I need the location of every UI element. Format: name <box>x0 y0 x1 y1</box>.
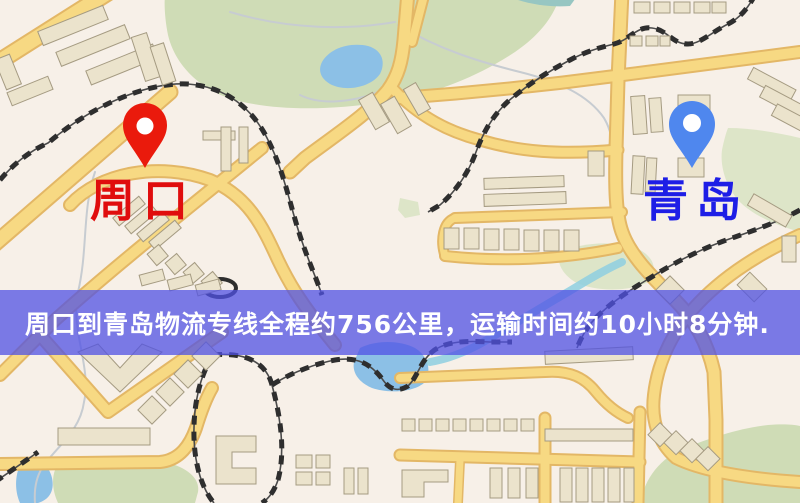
route-info-text: 周口到青岛物流专线全程约756公里，运输时间约10小时8分钟. <box>0 305 770 341</box>
origin-label: 周口 <box>90 178 196 223</box>
destination-label: 青岛 <box>643 178 749 223</box>
map-viewport: 周口 青岛 周口到青岛物流专线全程约756公里，运输时间约10小时8分钟. <box>0 0 800 503</box>
route-info-banner: 周口到青岛物流专线全程约756公里，运输时间约10小时8分钟. <box>0 290 800 355</box>
map-canvas[interactable] <box>0 0 800 503</box>
